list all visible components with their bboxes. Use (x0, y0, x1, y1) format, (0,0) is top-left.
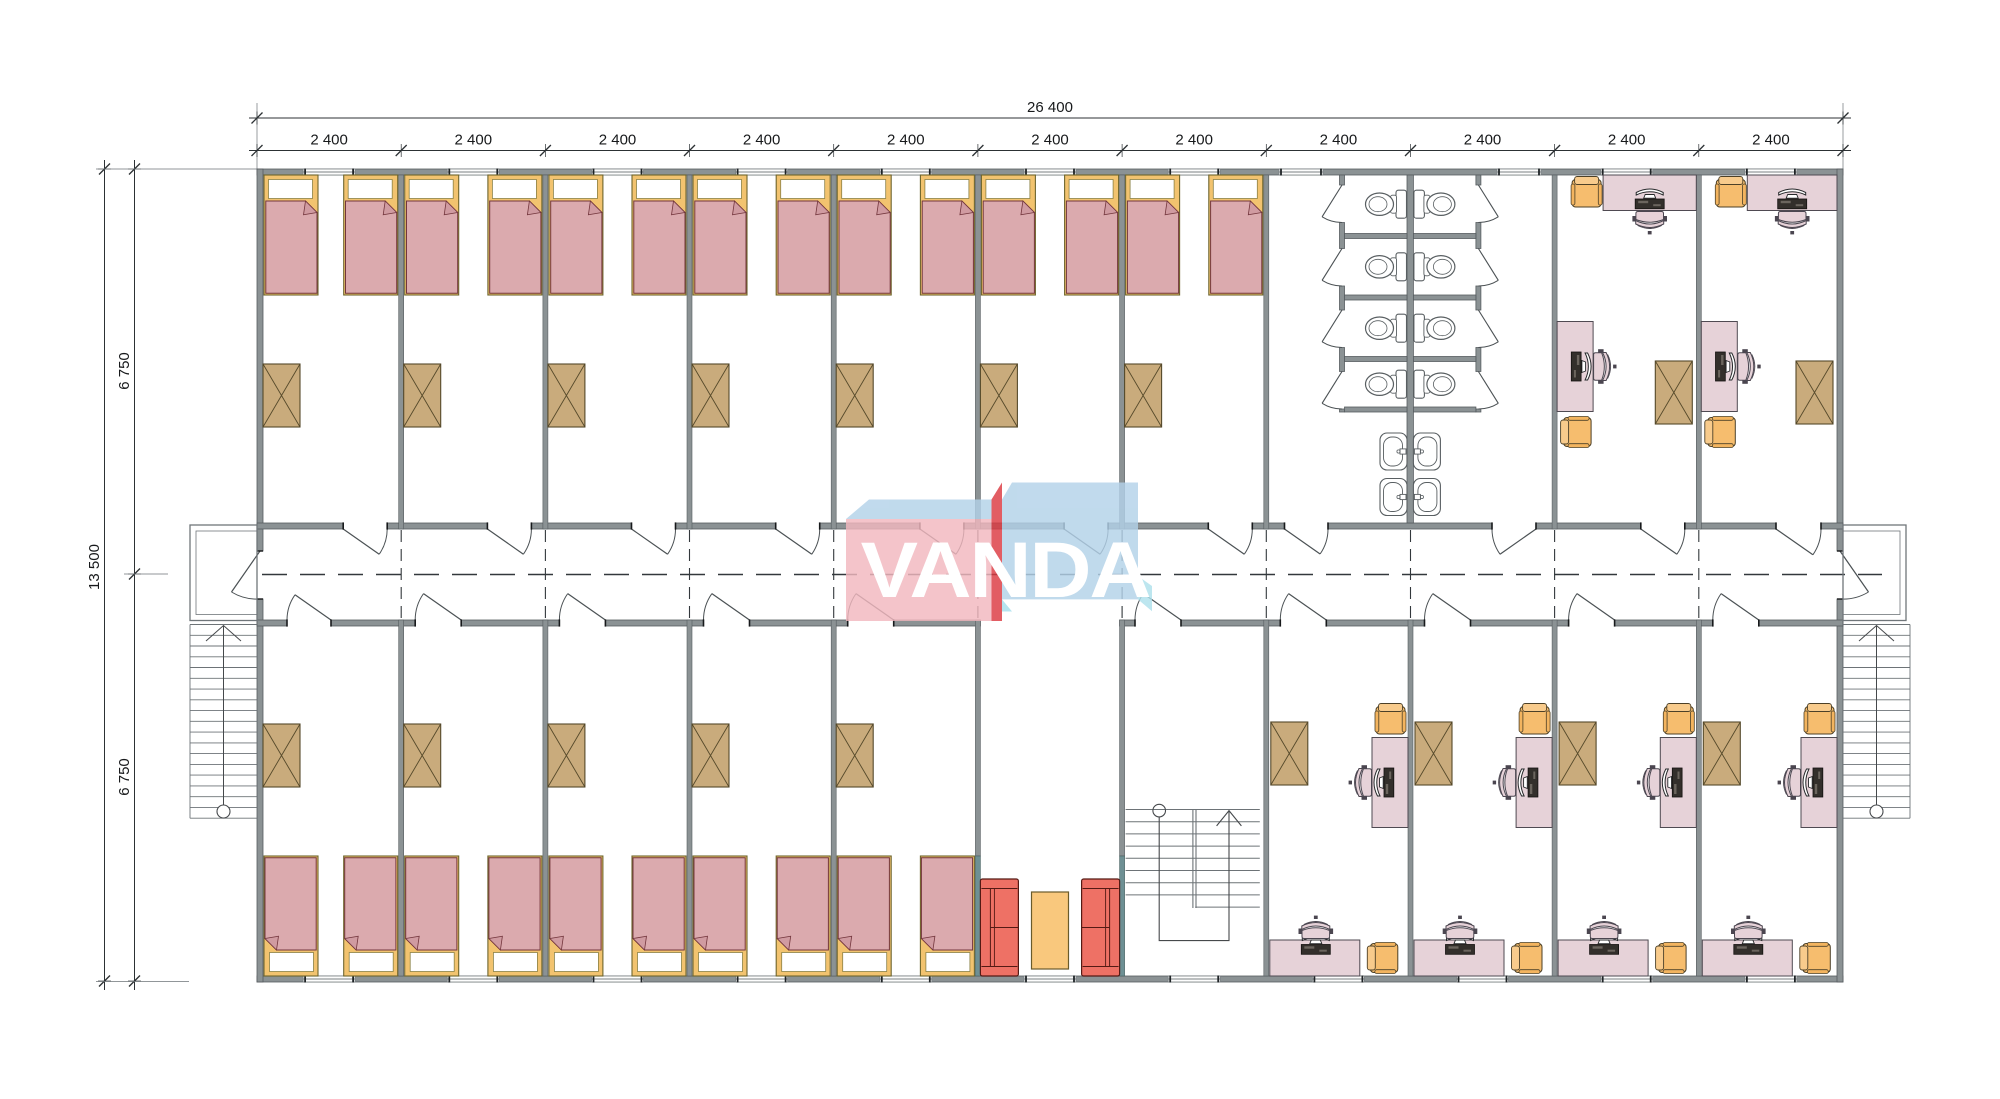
svg-text:VANDA: VANDA (861, 525, 1150, 614)
svg-text:2 400: 2 400 (1320, 132, 1358, 149)
svg-text:2 400: 2 400 (1608, 132, 1646, 149)
svg-text:2 400: 2 400 (455, 132, 493, 149)
svg-text:2 400: 2 400 (743, 132, 781, 149)
svg-text:6 750: 6 750 (116, 352, 133, 390)
svg-text:2 400: 2 400 (599, 132, 637, 149)
svg-text:2 400: 2 400 (887, 132, 925, 149)
svg-text:13 500: 13 500 (86, 544, 103, 590)
svg-text:26 400: 26 400 (1027, 99, 1073, 116)
svg-text:2 400: 2 400 (1752, 132, 1790, 149)
svg-text:2 400: 2 400 (1464, 132, 1502, 149)
svg-text:2 400: 2 400 (310, 132, 348, 149)
svg-text:6 750: 6 750 (116, 758, 133, 796)
svg-text:2 400: 2 400 (1031, 132, 1069, 149)
svg-text:2 400: 2 400 (1175, 132, 1213, 149)
